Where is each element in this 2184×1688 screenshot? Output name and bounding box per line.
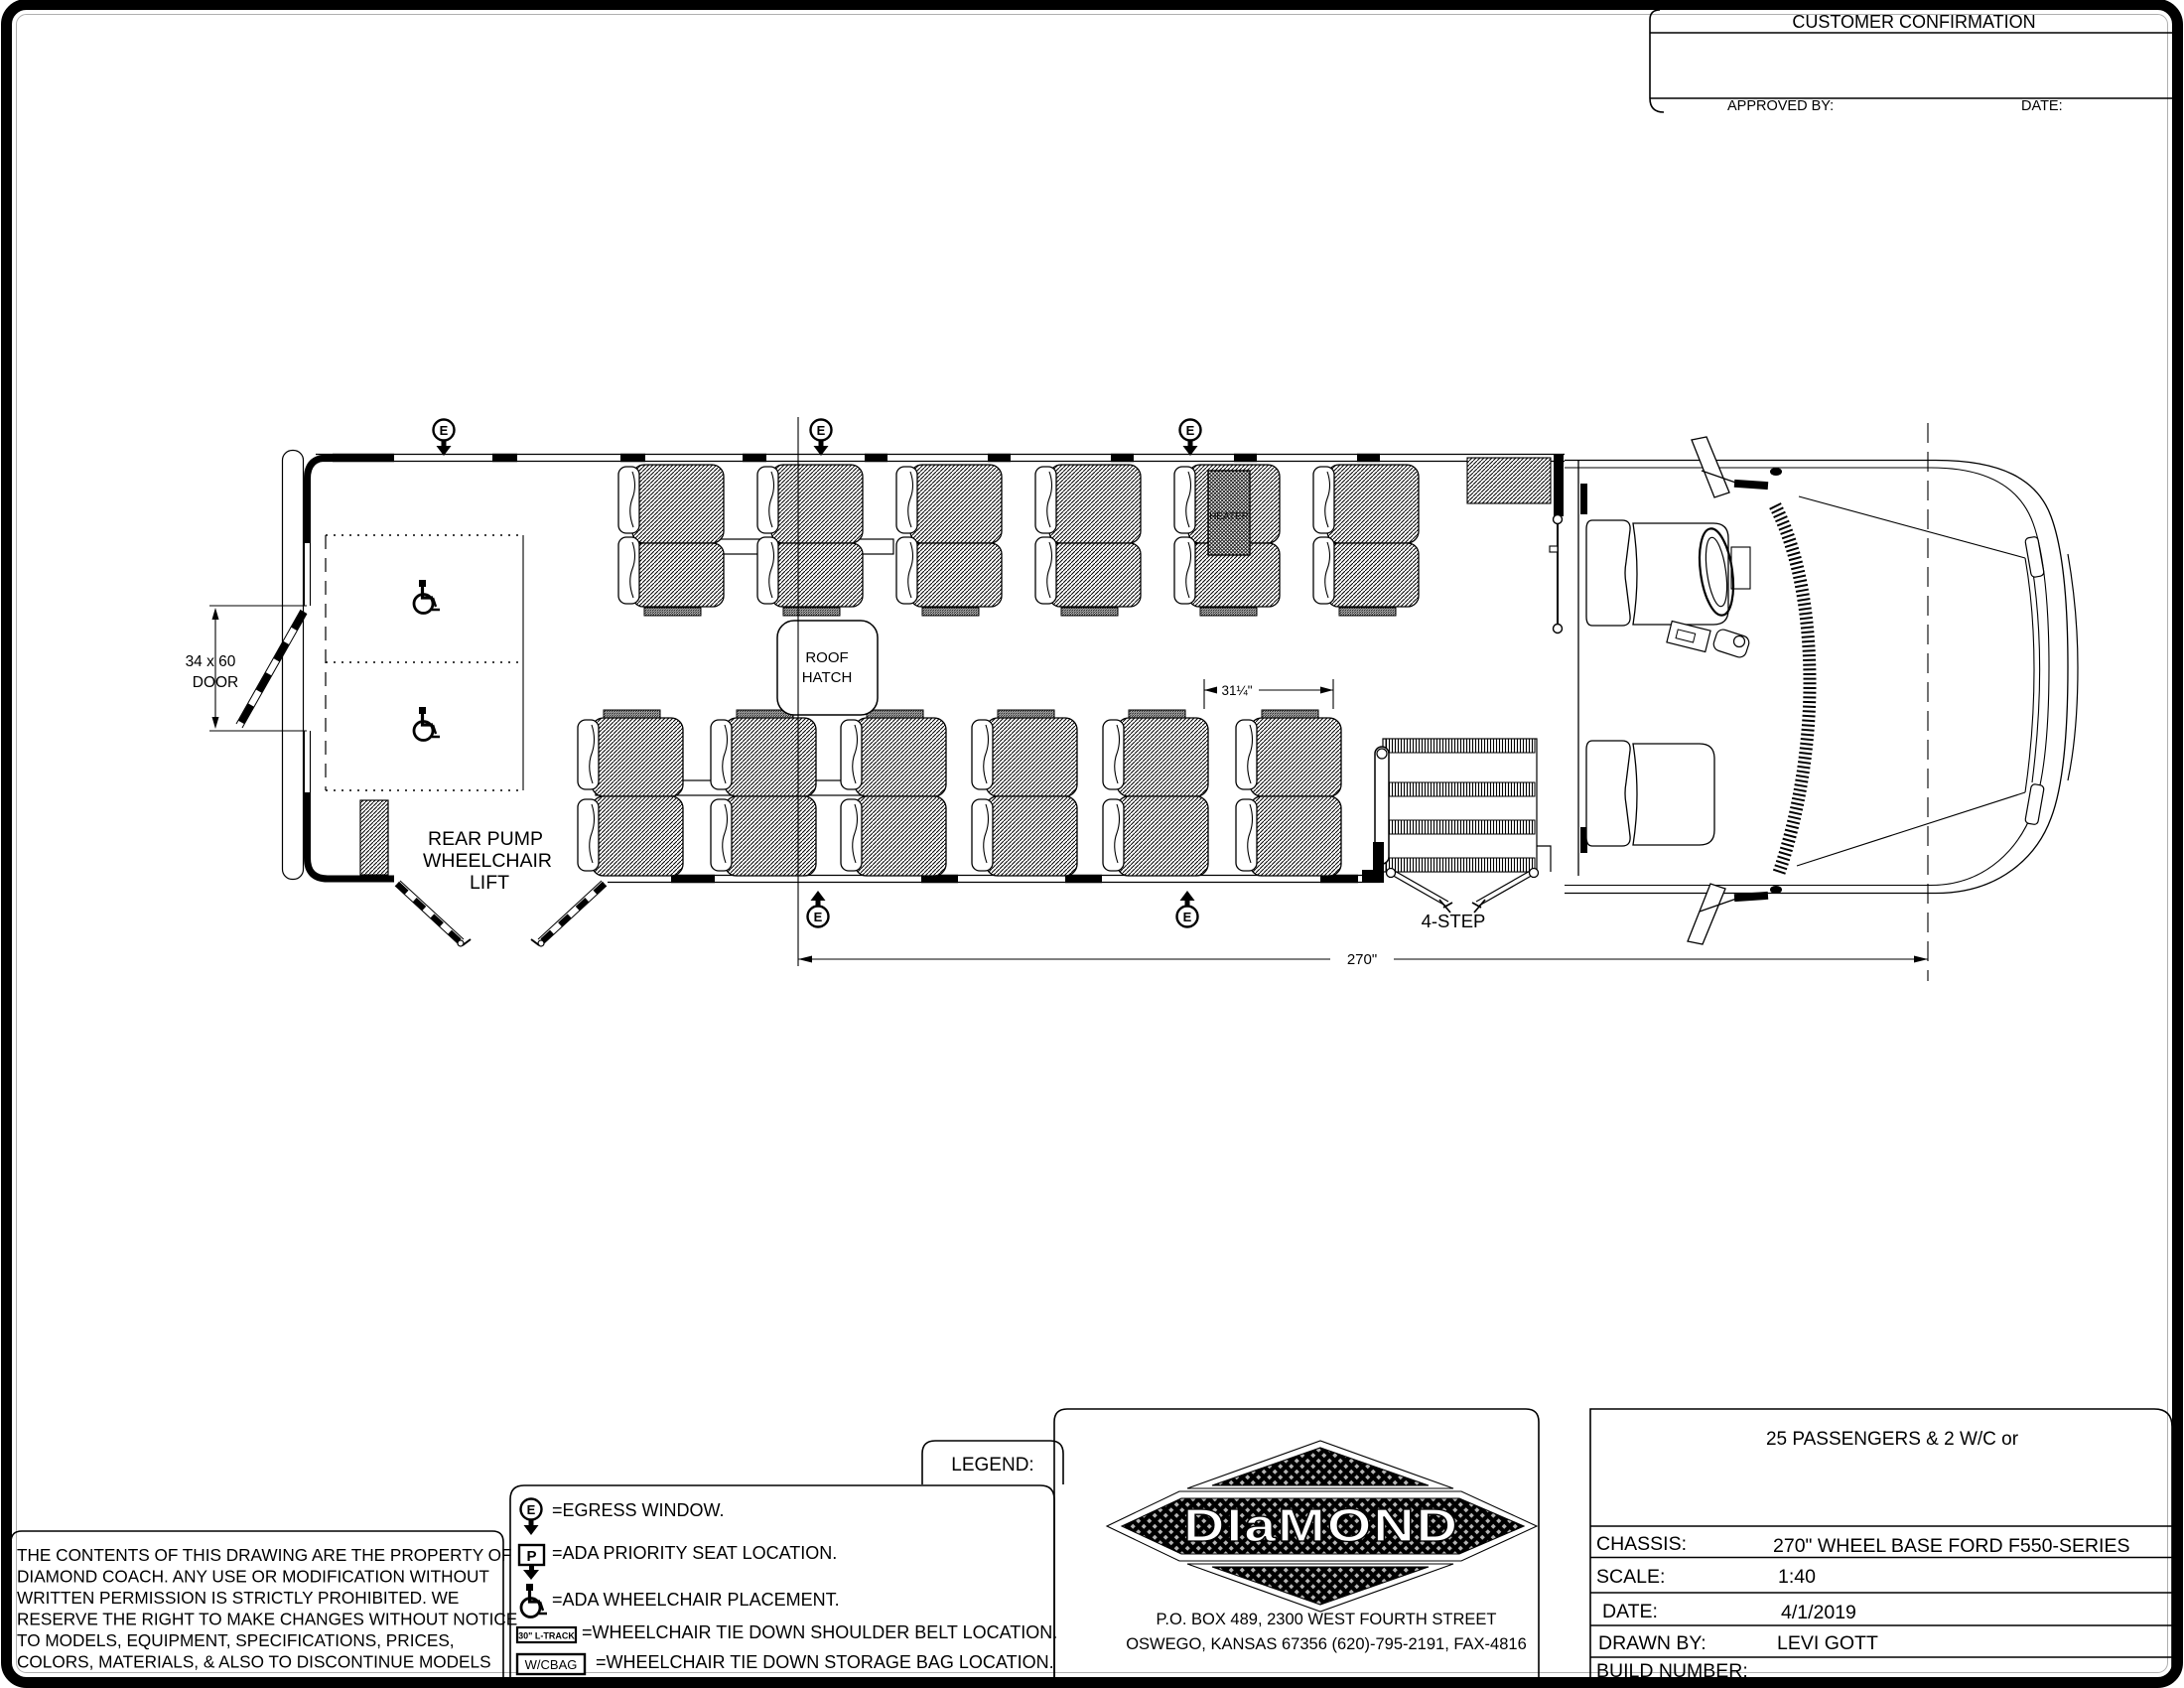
svg-text:DOOR: DOOR — [193, 674, 239, 691]
svg-text:RESERVE THE RIGHT TO MAKE CHAN: RESERVE THE RIGHT TO MAKE CHANGES WITHOU… — [17, 1610, 517, 1629]
svg-text:WRITTEN PERMISSION IS STRICTLY: WRITTEN PERMISSION IS STRICTLY PROHIBITE… — [17, 1588, 459, 1608]
svg-text:ROOF: ROOF — [805, 649, 848, 666]
svg-text:LEVI GOTT: LEVI GOTT — [1777, 1632, 1878, 1654]
svg-text:=ADA PRIORITY SEAT LOCATION.: =ADA PRIORITY SEAT LOCATION. — [552, 1543, 837, 1563]
svg-text:=ADA WHEELCHAIR PLACEMENT.: =ADA WHEELCHAIR PLACEMENT. — [552, 1590, 840, 1610]
svg-text:25 PASSENGERS & 2 W/C or: 25 PASSENGERS & 2 W/C or — [1766, 1429, 2019, 1450]
svg-text:REAR PUMP: REAR PUMP — [428, 828, 543, 850]
svg-text:WHEELCHAIR: WHEELCHAIR — [423, 850, 552, 872]
svg-text:4-STEP: 4-STEP — [1422, 911, 1486, 931]
svg-text:CUSTOMER CONFIRMATION: CUSTOMER CONFIRMATION — [1792, 12, 2035, 32]
svg-text:DIaMOND: DIaMOND — [1183, 1499, 1459, 1551]
svg-text:SCALE:: SCALE: — [1596, 1566, 1665, 1588]
svg-text:P.O. BOX 489, 2300 WEST FOURTH: P.O. BOX 489, 2300 WEST FOURTH STREET — [1157, 1611, 1497, 1628]
svg-text:34 x 60: 34 x 60 — [186, 653, 236, 670]
svg-text:COLORS, MATERIALS, & ALSO TO D: COLORS, MATERIALS, & ALSO TO DISCONTINUE… — [17, 1652, 491, 1672]
svg-text:TO MODELS, EQUIPMENT, SPECIFIC: TO MODELS, EQUIPMENT, SPECIFICATIONS, PR… — [17, 1630, 455, 1650]
svg-text:THE CONTENTS OF THIS DRAWING A: THE CONTENTS OF THIS DRAWING ARE THE PRO… — [17, 1545, 512, 1565]
svg-text:270": 270" — [1347, 951, 1377, 968]
svg-text:DIAMOND COACH. ANY USE OR MODI: DIAMOND COACH. ANY USE OR MODIFICATION W… — [17, 1567, 489, 1587]
svg-text:LIFT: LIFT — [470, 872, 509, 894]
svg-text:APPROVED BY:: APPROVED BY: — [1727, 98, 1834, 114]
svg-text:=WHEELCHAIR TIE DOWN SHOULDER: =WHEELCHAIR TIE DOWN SHOULDER BELT LOCAT… — [582, 1622, 1057, 1642]
svg-text:DATE:: DATE: — [1602, 1601, 1658, 1622]
svg-text:W/CBAG: W/CBAG — [525, 1657, 578, 1672]
svg-text:HATCH: HATCH — [802, 669, 853, 686]
svg-text:P: P — [526, 1548, 536, 1565]
svg-text:30" L-TRACK: 30" L-TRACK — [518, 1631, 575, 1641]
svg-text:DRAWN BY:: DRAWN BY: — [1598, 1632, 1706, 1654]
svg-text:CHASSIS:: CHASSIS: — [1596, 1533, 1687, 1555]
svg-text:=WHEELCHAIR TIE DOWN STORAGE B: =WHEELCHAIR TIE DOWN STORAGE BAG LOCATIO… — [596, 1652, 1054, 1672]
svg-text:=EGRESS WINDOW.: =EGRESS WINDOW. — [552, 1500, 725, 1520]
svg-text:DATE:: DATE: — [2021, 98, 2063, 114]
svg-text:31¼": 31¼" — [1221, 683, 1252, 698]
svg-text:HEATER: HEATER — [1209, 511, 1249, 522]
svg-text:270" WHEEL BASE FORD F550-SERI: 270" WHEEL BASE FORD F550-SERIES — [1773, 1535, 2129, 1557]
svg-text:BUILD NUMBER:: BUILD NUMBER: — [1596, 1660, 1748, 1682]
svg-text:OSWEGO, KANSAS 67356 (620)-795: OSWEGO, KANSAS 67356 (620)-795-2191, FAX… — [1126, 1635, 1527, 1653]
svg-text:LEGEND:: LEGEND: — [951, 1455, 1033, 1476]
svg-text:1:40: 1:40 — [1778, 1566, 1816, 1588]
svg-text:4/1/2019: 4/1/2019 — [1781, 1602, 1856, 1623]
